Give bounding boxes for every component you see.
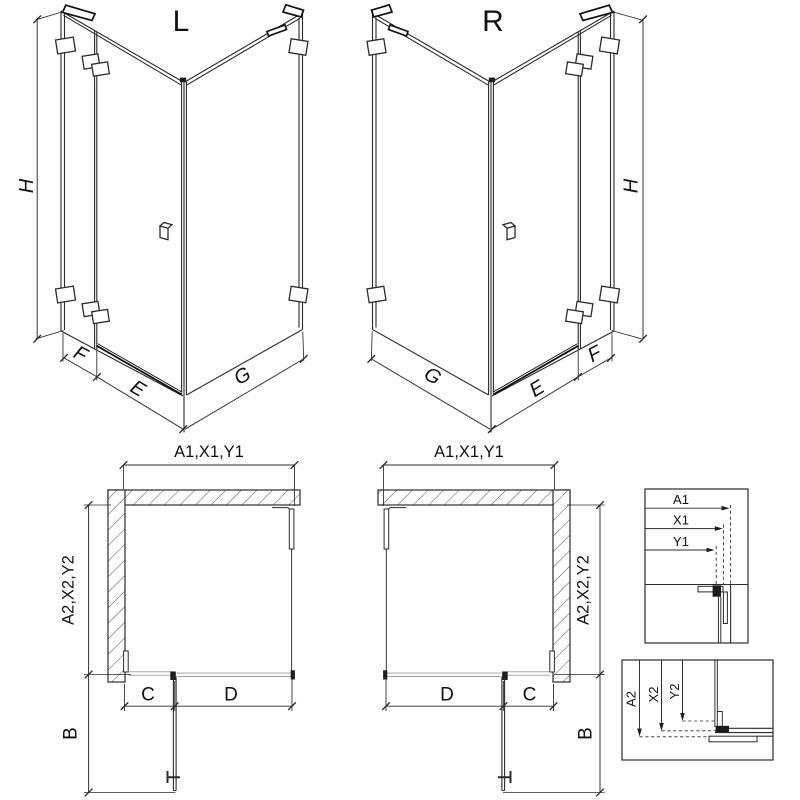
door-hinge-icon	[566, 309, 584, 323]
door-knob-icon	[160, 223, 172, 240]
dim-label-g-right: G	[420, 363, 445, 390]
glass-clamp-icon	[367, 286, 386, 302]
detail-x2-label: X2	[646, 687, 661, 703]
glass-clamp-icon	[600, 286, 620, 303]
shower-enclosure-technical-drawing: H F E G L H F E G R	[0, 0, 800, 800]
glass-clamp-icon	[289, 39, 308, 55]
glass-clamp-icon	[367, 39, 386, 55]
wall-section-top	[108, 490, 300, 505]
detail-y1-label: Y1	[673, 534, 689, 549]
arrowhead-icon	[722, 506, 730, 511]
door-knob-icon	[503, 223, 515, 240]
dim-label-e-left: E	[126, 376, 149, 402]
dim-label-h-left: H	[16, 178, 38, 193]
dim-label-f-left: F	[70, 342, 93, 368]
plan-left-depth-label: A2,X2,Y2	[59, 555, 77, 625]
detail-a1-label: A1	[673, 492, 689, 507]
arrowhead-icon	[680, 713, 685, 721]
detail-x1-label: X1	[673, 512, 689, 527]
door-hinge-icon	[92, 62, 110, 76]
dim-label-h-right: H	[620, 178, 642, 193]
wall-bracket-icon	[267, 25, 287, 36]
wall-bracket-icon	[389, 25, 409, 36]
wall-bracket-icon	[283, 5, 304, 17]
variant-label-left: L	[173, 5, 190, 38]
wall-section-right	[553, 490, 570, 682]
detail-depth-box: A2 X2 Y2	[622, 660, 773, 760]
iso-left-view: H F E G L	[16, 5, 308, 433]
arrowhead-icon	[659, 723, 664, 731]
plan-left-width-label: A1,X1,Y1	[174, 443, 244, 461]
glass-clamp-icon	[56, 37, 76, 54]
plan-right-width-label: A1,X1,Y1	[434, 443, 504, 461]
glass-clamp-icon	[56, 286, 76, 303]
plan-right-view: A1,X1,Y1 A2,X2,Y2 B D C	[378, 443, 605, 796]
plan-left-view: A1,X1,Y1 A2,X2,Y2 B C D	[59, 443, 300, 796]
door-hinge-icon	[566, 62, 584, 76]
dim-label-d-left: D	[224, 685, 238, 706]
dim-label-b-left: B	[61, 727, 82, 740]
wall-section-top	[378, 490, 570, 505]
detail-a2-label: A2	[623, 691, 638, 707]
arrowhead-icon	[707, 548, 715, 553]
wall-bracket-icon	[372, 5, 393, 17]
iso-right-view: H F E G R	[367, 5, 647, 433]
dim-label-g-left: G	[230, 363, 255, 390]
variant-label-right: R	[482, 5, 504, 38]
glass-clamp-icon	[600, 37, 620, 54]
arrowhead-icon	[715, 526, 723, 531]
dim-label-d-right: D	[440, 685, 454, 706]
dim-label-c-left: C	[141, 685, 155, 706]
technical-drawing-page: H F E G L H F E G R	[0, 0, 800, 800]
plan-right-depth-label: A2,X2,Y2	[574, 555, 592, 625]
dim-label-c-right: C	[523, 685, 537, 706]
glass-clamp-icon	[289, 286, 308, 302]
detail-y2-label: Y2	[667, 684, 682, 700]
wall-section-left	[108, 490, 125, 682]
detail-width-box: A1 X1 Y1	[645, 489, 748, 643]
dim-label-b-right: B	[576, 727, 597, 740]
dim-label-e-right: E	[526, 376, 549, 402]
door-hinge-icon	[92, 309, 110, 323]
arrowhead-icon	[637, 729, 642, 737]
dim-label-f-right: F	[584, 341, 607, 367]
